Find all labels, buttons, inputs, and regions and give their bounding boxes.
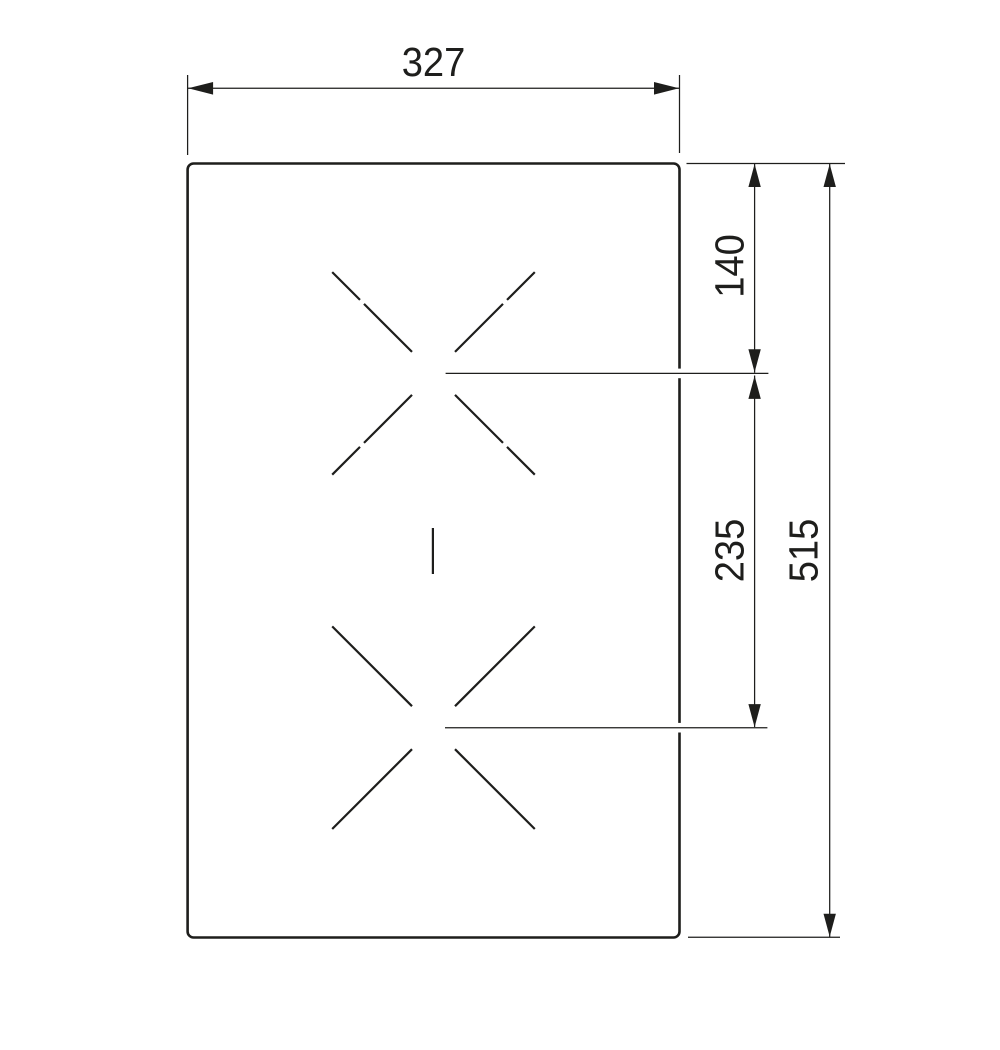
svg-text:327: 327	[402, 40, 466, 86]
svg-text:140: 140	[707, 234, 753, 298]
svg-text:235: 235	[707, 519, 753, 583]
svg-text:515: 515	[781, 519, 827, 583]
